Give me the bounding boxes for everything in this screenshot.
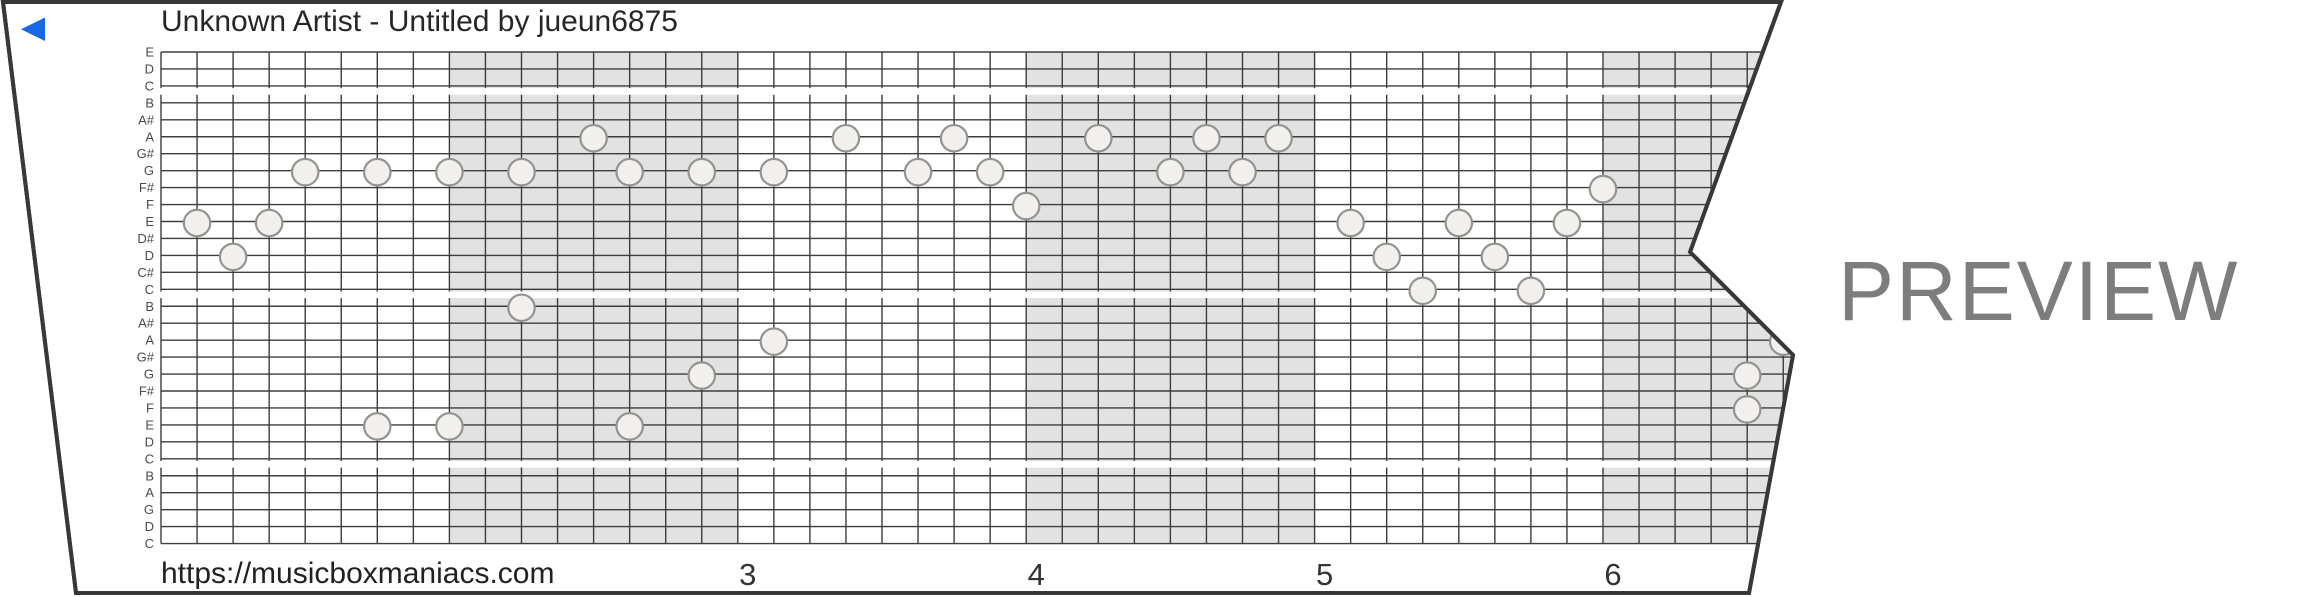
row-label: G [144,367,154,382]
row-label: D [145,434,154,449]
song-title: Unknown Artist - Untitled by jueun6875 [161,5,678,39]
row-label: D# [137,231,154,246]
note-dot-G5 [689,159,715,185]
note-dot-G5 [761,159,787,185]
note-dot-E5 [1554,210,1580,236]
note-dot-F#5 [1590,176,1616,202]
preview-watermark: PREVIEW [1838,246,2239,336]
note-dot-D5 [1374,244,1400,270]
row-label: F [146,197,154,212]
note-dot-E5 [184,210,210,236]
row-label: F [146,400,154,415]
row-label: E [145,214,154,229]
measure-number: 6 [1604,557,1621,592]
note-dot-C5 [1410,278,1436,304]
row-label: C [145,78,154,93]
note-dot-G5 [436,159,462,185]
note-dot-D5 [220,244,246,270]
note-dot-C5 [1518,278,1544,304]
row-label: G [144,163,154,178]
row-label: D [145,248,154,263]
note-dot-A5 [941,125,967,151]
note-dot-B4 [508,295,534,321]
note-dot-A5 [580,125,606,151]
row-label: A [145,485,154,500]
music-box-preview: EDCBA#AG#GF#FED#DC#CBA#AG#GF#FEDCBAGDC 3… [0,0,2310,597]
row-label: C [145,451,154,466]
measure-number: 5 [1316,557,1333,592]
note-dot-G5 [1157,159,1183,185]
note-dot-G5 [1229,159,1255,185]
note-dot-E4 [616,413,642,439]
row-label: C [145,536,154,551]
note-dot-A5 [1193,125,1219,151]
note-dot-E5 [1337,210,1363,236]
note-dot-G5 [292,159,318,185]
note-dot-G5 [508,159,534,185]
note-dot-G5 [364,159,390,185]
note-dot-E5 [256,210,282,236]
note-dot-G4 [1734,362,1760,388]
note-dot-G5 [905,159,931,185]
row-label: F# [139,384,155,399]
note-dot-E4 [436,413,462,439]
measure-number: 4 [1028,557,1045,592]
note-dot-A4 [1770,328,1796,354]
row-label: D [145,519,154,534]
row-label: E [145,45,154,60]
row-label: A# [138,316,155,331]
note-dot-F4 [1734,396,1760,422]
row-label: E [145,417,154,432]
row-label: G# [137,350,155,365]
note-dot-G5 [616,159,642,185]
note-dot-D5 [1482,244,1508,270]
row-label: B [145,299,154,314]
row-label: A [145,333,154,348]
row-label: D [145,61,154,76]
row-label: G# [137,146,155,161]
note-dot-F5 [1013,193,1039,219]
row-label: B [145,95,154,110]
note-dot-A5 [833,125,859,151]
note-dot-A5 [1085,125,1111,151]
row-label: A# [138,112,155,127]
row-label: F# [139,180,155,195]
note-dot-G5 [977,159,1003,185]
row-label: C# [137,265,154,280]
note-dot-E4 [364,413,390,439]
row-label: A [145,129,154,144]
note-dot-A4 [761,328,787,354]
note-dot-A5 [1265,125,1291,151]
note-dot-E5 [1446,210,1472,236]
row-label: C [145,282,154,297]
row-label: B [145,468,154,483]
measure-number: 3 [739,557,756,592]
row-label: G [144,502,154,517]
site-url: https://musicboxmaniacs.com [161,557,554,591]
note-dot-G4 [689,362,715,388]
